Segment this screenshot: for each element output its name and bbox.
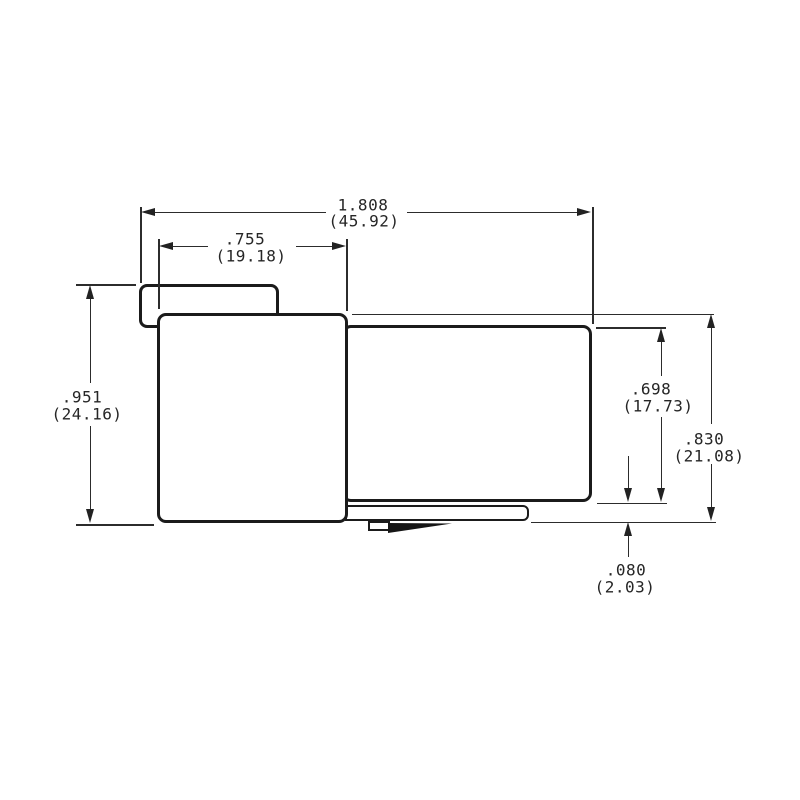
- dim-line-tab-width-right-segment: [296, 246, 335, 248]
- arrowhead-right-body-height-bottom: [657, 488, 665, 502]
- dim-line-overall-height-bottom-segment: [90, 426, 92, 511]
- arrowhead-body-height-bottom: [707, 507, 715, 521]
- extension-line-body-height-top: [352, 314, 714, 316]
- arrowhead-bottom-offset-upper: [624, 488, 632, 502]
- arrowhead-overall-width-left: [141, 208, 155, 216]
- extension-line-overall-width-left: [140, 207, 142, 283]
- dim-line-body-height-top-segment: [711, 326, 713, 424]
- dim-line-right-body-height-top-segment: [661, 340, 663, 376]
- dim-label-overall-height-mm: (24.16): [52, 405, 123, 424]
- dim-line-overall-width-right-segment: [407, 212, 579, 214]
- dim-label-body-height-mm: (21.08): [674, 447, 745, 466]
- extension-line-right-body-bottom: [597, 503, 667, 505]
- dim-label-overall-width-mm: (45.92): [329, 212, 400, 231]
- extension-line-right-body-top: [596, 327, 666, 329]
- dim-line-right-body-height-bottom-segment: [661, 417, 663, 490]
- dim-line-overall-height-top-segment: [90, 297, 92, 383]
- dim-line-tab-width-left-segment: [170, 246, 208, 248]
- arrowhead-bottom-offset-lower: [624, 522, 632, 536]
- extension-line-tab-width-left: [158, 239, 160, 309]
- dim-line-overall-width-left-segment: [152, 212, 326, 214]
- arrowhead-tab-width-right: [332, 242, 346, 250]
- arrowhead-overall-height-bottom: [86, 509, 94, 523]
- part-outline-left-body: [157, 313, 348, 523]
- latch-wedge: [388, 523, 452, 533]
- dim-line-bottom-offset-lower-segment: [628, 534, 630, 557]
- part-outline-right-body: [342, 325, 592, 502]
- dim-label-right-body-height-mm: (17.73): [623, 397, 694, 416]
- dim-label-tab-width-mm: (19.18): [216, 247, 287, 266]
- extension-line-overall-height-bottom: [76, 524, 154, 526]
- extension-line-tab-width-right: [346, 239, 348, 311]
- extension-line-overall-width-right: [592, 207, 594, 324]
- dim-line-bottom-offset-upper-segment: [628, 456, 630, 490]
- arrowhead-overall-height-top: [86, 285, 94, 299]
- part-outline-bottom-plate: [345, 505, 529, 521]
- latch-step: [368, 521, 390, 531]
- drawing-canvas: 1.808 (45.92) .755 (19.18) .951 (24.16) …: [0, 0, 800, 800]
- arrowhead-tab-width-left: [159, 242, 173, 250]
- arrowhead-overall-width-right: [577, 208, 591, 216]
- dim-line-body-height-bottom-segment: [711, 464, 713, 509]
- arrowhead-body-height-top: [707, 314, 715, 328]
- arrowhead-right-body-height-top: [657, 328, 665, 342]
- dim-label-bottom-offset-mm: (2.03): [595, 578, 656, 597]
